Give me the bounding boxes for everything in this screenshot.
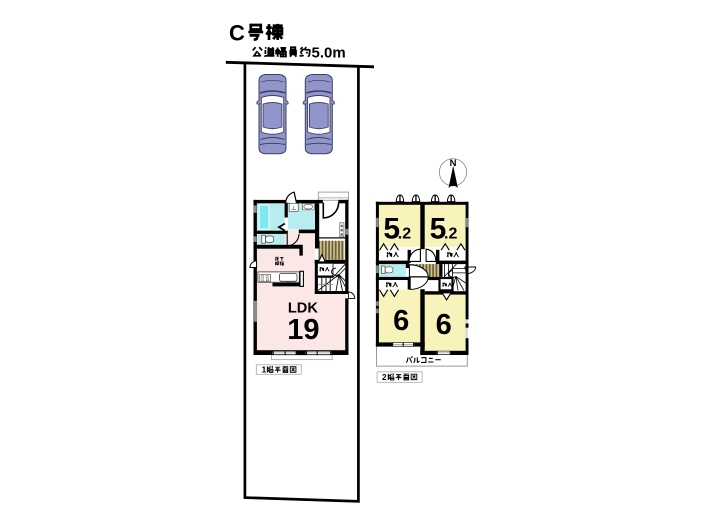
svg-text:19: 19 [287,314,319,346]
svg-text:2: 2 [382,373,387,382]
svg-text:6: 6 [393,305,409,337]
svg-text:1: 1 [262,366,267,375]
svg-text:.2: .2 [398,226,411,243]
svg-text:.2: .2 [444,226,457,243]
svg-text:6: 6 [436,309,452,341]
svg-text:C: C [229,21,245,46]
svg-text:5.0m: 5.0m [312,45,346,62]
